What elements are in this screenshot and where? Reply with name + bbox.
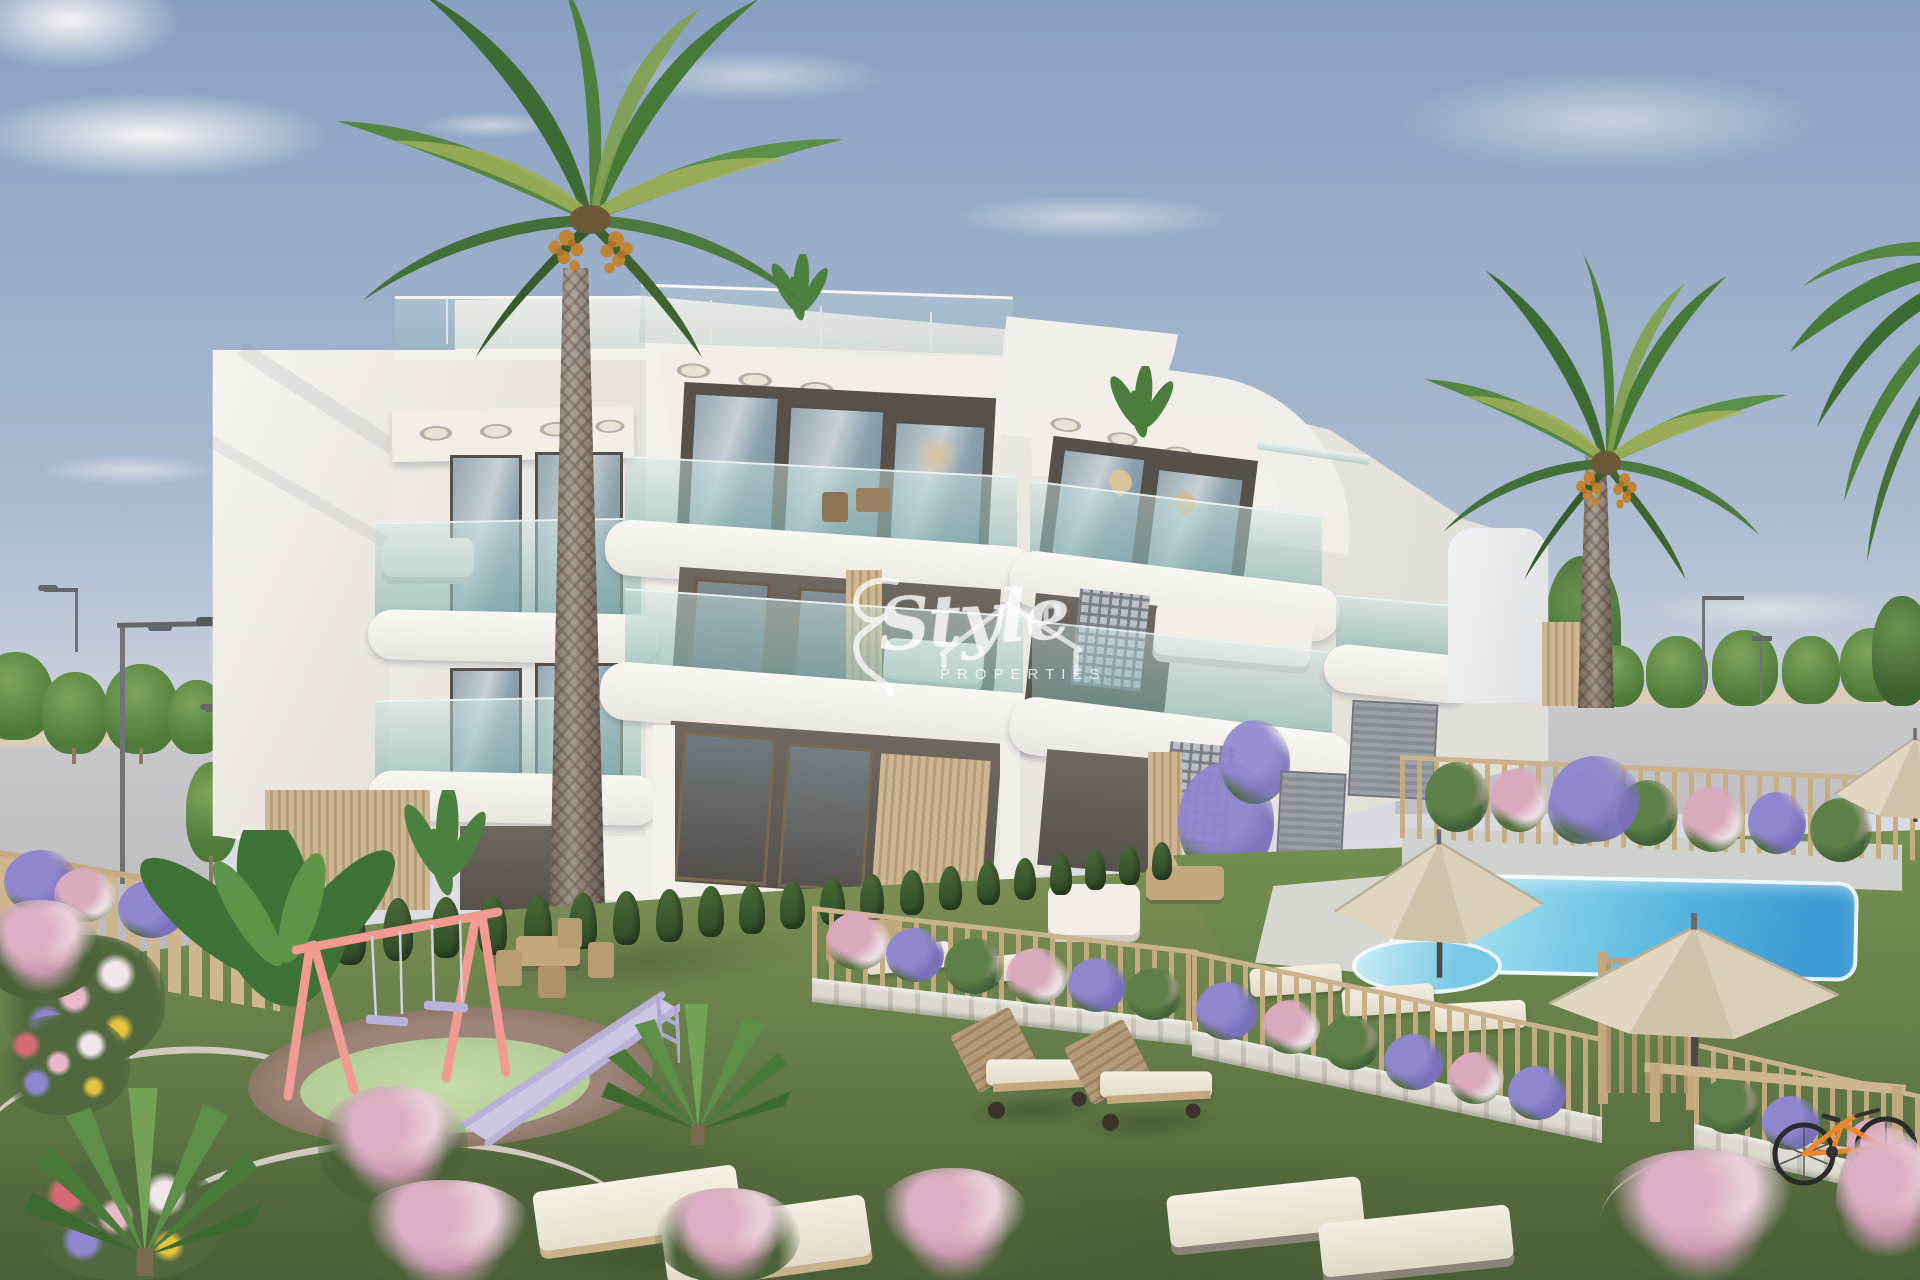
parasol	[1540, 905, 1848, 1083]
dining-chair	[496, 950, 522, 986]
scene-render: Style PROPERTIES	[0, 0, 1920, 1280]
street-lamp-head	[1752, 636, 1772, 641]
fence-flowers	[1448, 1052, 1504, 1104]
wood-slat-wall	[872, 753, 991, 896]
street-lamp	[120, 626, 125, 884]
fence-flowers	[1006, 948, 1068, 1004]
parasol	[1830, 722, 1920, 822]
corner-palm-fronds	[1782, 232, 1920, 572]
fence-flowers	[1384, 1034, 1444, 1090]
fence-climber	[1682, 786, 1744, 852]
terrace-dining-set	[496, 916, 636, 1000]
cloud	[1650, 590, 1880, 630]
canopy-skylight	[670, 360, 717, 382]
sliding-door	[674, 732, 776, 886]
sliding-door	[778, 743, 874, 893]
street-lamp	[75, 590, 78, 652]
palm-tree-crown	[1420, 248, 1792, 582]
palm-tree-crown	[330, 0, 850, 360]
fence-flowers	[944, 938, 1004, 994]
street-lamp	[1760, 640, 1762, 700]
dining-chair	[538, 966, 566, 998]
fan-palm-bush	[20, 1080, 270, 1280]
fence-flowers	[886, 928, 944, 982]
flower-bush	[352, 1180, 537, 1280]
cloud	[40, 455, 220, 485]
fence-flowers	[1700, 1078, 1760, 1134]
background-tree	[1872, 596, 1920, 706]
fence-flowers	[1126, 968, 1182, 1020]
facade-band	[368, 609, 661, 665]
bougainvillea-bush	[1550, 756, 1640, 842]
railing-post	[930, 312, 932, 352]
canopy-skylight	[474, 421, 518, 442]
watermark-subtitle: PROPERTIES	[940, 666, 1106, 683]
cloud	[950, 195, 1230, 239]
fence-flowers	[1322, 1016, 1380, 1070]
street-lamp-head	[148, 625, 172, 631]
tree-trunk	[139, 748, 143, 764]
fence-flowers	[826, 912, 890, 970]
watermark-house-icon	[934, 594, 1086, 676]
dining-chair	[558, 918, 582, 948]
tree-trunk	[72, 748, 76, 764]
background-tree	[1712, 630, 1778, 706]
street-lamp-head	[38, 585, 58, 591]
wooden-lounger	[1063, 1024, 1225, 1142]
fence-climber	[1748, 792, 1806, 854]
fence-flowers	[1262, 1000, 1320, 1054]
background-tree	[42, 672, 108, 754]
white-pillar	[653, 725, 675, 903]
background-tree	[104, 664, 178, 754]
cloud	[1400, 70, 1820, 170]
street-lamp-arm	[1702, 596, 1744, 600]
flower-bush	[655, 1188, 800, 1280]
flower-bush	[1836, 1128, 1920, 1280]
canopy-skylight	[1044, 413, 1088, 437]
background-tree	[1646, 636, 1708, 708]
street-lamp	[1702, 598, 1705, 694]
canopy-skylight	[590, 417, 630, 436]
canopy-skylight	[414, 423, 458, 444]
background-tree	[1782, 636, 1840, 704]
fence-flowers	[1068, 958, 1126, 1012]
flower-bush	[1596, 1150, 1801, 1280]
wood-slat-screen	[1542, 622, 1582, 706]
parasol	[1328, 822, 1550, 984]
watermark: Style PROPERTIES	[848, 566, 1084, 706]
bike-rack-post	[1650, 1064, 1660, 1122]
daybed-pair	[1168, 1178, 1513, 1280]
dining-chair	[588, 942, 614, 978]
fan-palm-bush	[598, 998, 798, 1148]
flower-bush	[872, 1168, 1032, 1280]
roof-banana-plant	[1104, 366, 1178, 450]
balcony-chair	[822, 492, 848, 522]
balcony-table	[856, 488, 890, 512]
